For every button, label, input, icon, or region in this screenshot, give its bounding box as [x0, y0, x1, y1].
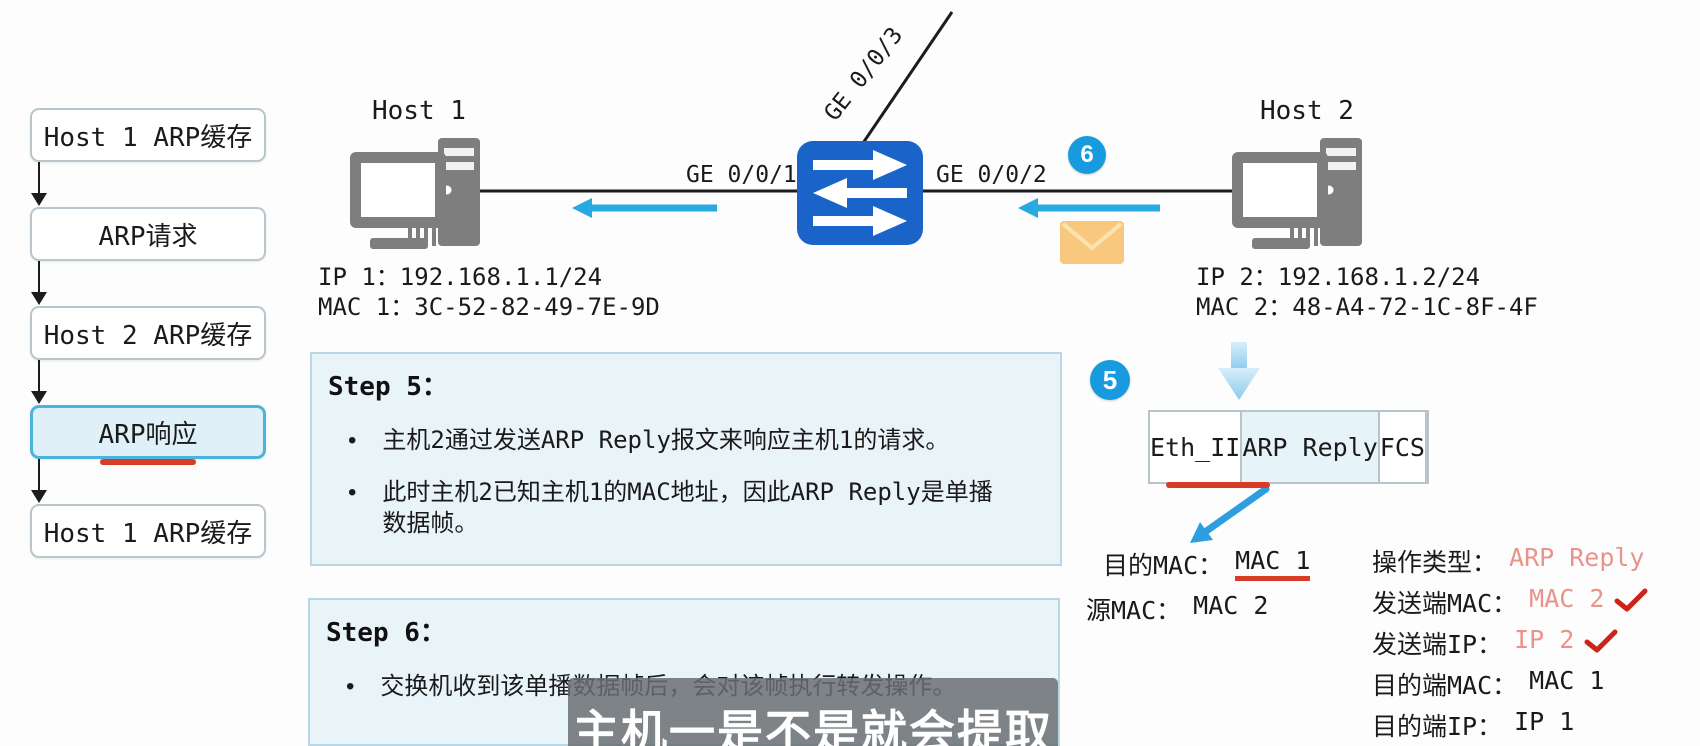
field-label: 目的端MAC：: [1372, 666, 1517, 702]
host1-label: Host 1: [372, 96, 466, 126]
video-subtitle-overlay: 主机一是不是就会提取: [568, 678, 1058, 746]
red-checkmark-icon: [1614, 588, 1648, 612]
frame-direction-arrow-right: [1018, 198, 1160, 218]
field-value: IP 2: [1514, 625, 1574, 654]
arp-tutorial-slide: Host 1 ARP缓存 ARP请求 Host 2 ARP缓存: [0, 0, 1700, 746]
step-6-badge: 6: [1068, 136, 1106, 174]
host2-computer-icon: [1232, 138, 1369, 251]
host1-computer-icon: [350, 138, 487, 251]
frame-field-cell: Eth_II: [1150, 412, 1242, 482]
field-value: MAC 1: [1529, 666, 1604, 695]
host2-ip: IP 2：192.168.1.2/24: [1196, 262, 1538, 292]
eth-header-fields: 目的MAC： MAC 1 源MAC： MAC 2: [1086, 546, 1310, 636]
arp-payload-field-row: 目的端IP： IP 1: [1372, 707, 1648, 746]
red-checkmark-icon: [1584, 629, 1618, 653]
field-label: 发送端IP：: [1372, 625, 1502, 661]
field-value: IP 1: [1514, 707, 1574, 736]
host1-mac: MAC 1：3C-52-82-49-7E-9D: [318, 292, 660, 322]
field-label: 源MAC：: [1086, 591, 1181, 627]
field-label: 目的端IP：: [1372, 707, 1502, 743]
subtitle-text: 主机一是不是就会提取: [568, 696, 1058, 746]
arp-reply-frame-table: Eth_IIARP ReplyFCS: [1148, 410, 1429, 484]
step5-description-box: Step 5： 主机2通过发送ARP Reply报文来响应主机1的请求。 此时主…: [310, 352, 1062, 566]
field-label: 目的MAC：: [1103, 546, 1223, 582]
step-5-badge: 5: [1090, 360, 1130, 400]
arp-payload-fields: 操作类型： ARP Reply 发送端MAC： MAC 2 发送端IP： IP …: [1372, 543, 1648, 746]
frame-field-cell: FCS: [1380, 412, 1427, 482]
field-value: ARP Reply: [1509, 543, 1644, 572]
ethernet-switch-icon: [797, 141, 923, 245]
port-ge001-label: GE 0/0/1: [686, 162, 797, 188]
eth-ii-red-underline: [1166, 482, 1270, 488]
frame-direction-arrow-left: [572, 198, 717, 218]
arp-payload-field-row: 发送端IP： IP 2: [1372, 625, 1648, 666]
bullet-text: 此时主机2已知主机1的MAC地址，因此ARP Reply是单播数据帧。: [382, 477, 1004, 539]
field-value: MAC 2: [1193, 591, 1268, 620]
frame-field-cell: ARP Reply: [1242, 412, 1379, 482]
field-label: 操作类型：: [1372, 543, 1497, 579]
step5-bullet: 主机2通过发送ARP Reply报文来响应主机1的请求。: [348, 425, 1060, 456]
bullet-text: 主机2通过发送ARP Reply报文来响应主机1的请求。: [382, 425, 949, 456]
host1-address-block: IP 1：192.168.1.1/24 MAC 1：3C-52-82-49-7E…: [318, 262, 660, 322]
host2-address-block: IP 2：192.168.1.2/24 MAC 2：48-A4-72-1C-8F…: [1196, 262, 1538, 322]
port-ge002-label: GE 0/0/2: [936, 162, 1047, 188]
arp-payload-field-row: 发送端MAC： MAC 2: [1372, 584, 1648, 625]
gradient-down-arrow-icon: [1216, 342, 1262, 404]
arp-payload-field-row: 操作类型： ARP Reply: [1372, 543, 1648, 584]
frame-envelope-icon: [1060, 221, 1124, 264]
field-value: MAC 2: [1529, 584, 1604, 613]
host2-label: Host 2: [1260, 96, 1354, 126]
host2-mac: MAC 2：48-A4-72-1C-8F-4F: [1196, 292, 1538, 322]
arp-payload-field-row: 目的端MAC： MAC 1: [1372, 666, 1648, 707]
step5-bullet: 此时主机2已知主机1的MAC地址，因此ARP Reply是单播数据帧。: [348, 477, 1060, 539]
eth-header-pointer-arrow: [1190, 489, 1266, 543]
field-label: 发送端MAC：: [1372, 584, 1517, 620]
host1-ip: IP 1：192.168.1.1/24: [318, 262, 660, 292]
step6-title: Step 6：: [310, 600, 1058, 649]
eth-header-field-row: 目的MAC： MAC 1: [1086, 546, 1310, 591]
step5-title: Step 5：: [312, 354, 1060, 403]
field-value: MAC 1: [1235, 546, 1310, 581]
eth-header-field-row: 源MAC： MAC 2: [1086, 591, 1310, 636]
